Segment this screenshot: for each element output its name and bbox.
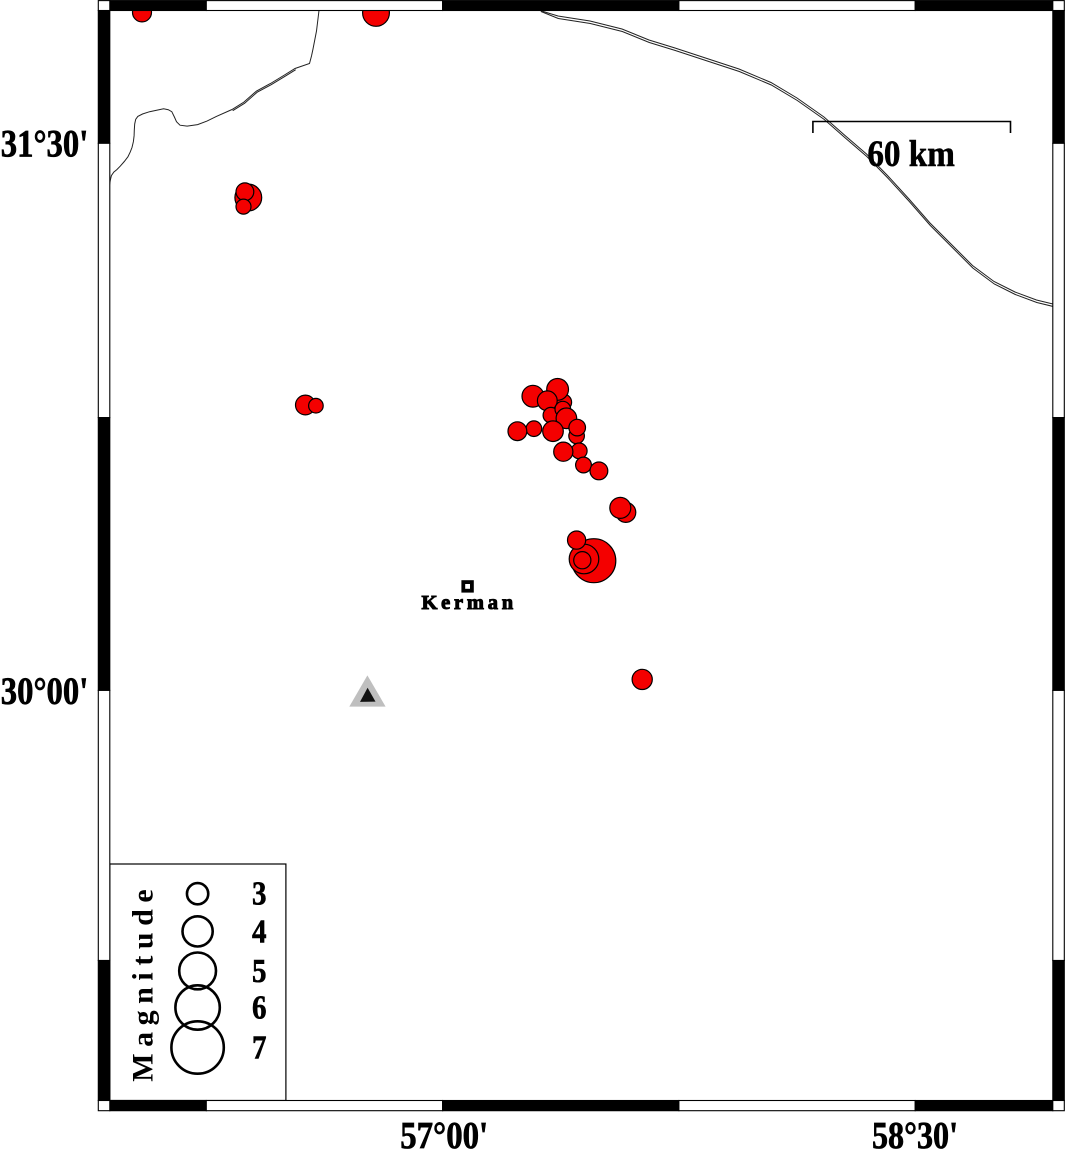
svg-text:31°30': 31°30'	[1, 123, 89, 166]
svg-text:57°00': 57°00'	[400, 1115, 488, 1149]
svg-text:4: 4	[252, 913, 267, 950]
svg-text:6: 6	[252, 990, 267, 1027]
svg-text:58°30': 58°30'	[872, 1115, 958, 1149]
svg-text:5: 5	[252, 953, 267, 990]
svg-text:7: 7	[252, 1030, 267, 1067]
svg-text:60 km: 60 km	[867, 134, 955, 175]
svg-text:30°00': 30°00'	[1, 670, 89, 713]
svg-text:3: 3	[252, 876, 267, 913]
